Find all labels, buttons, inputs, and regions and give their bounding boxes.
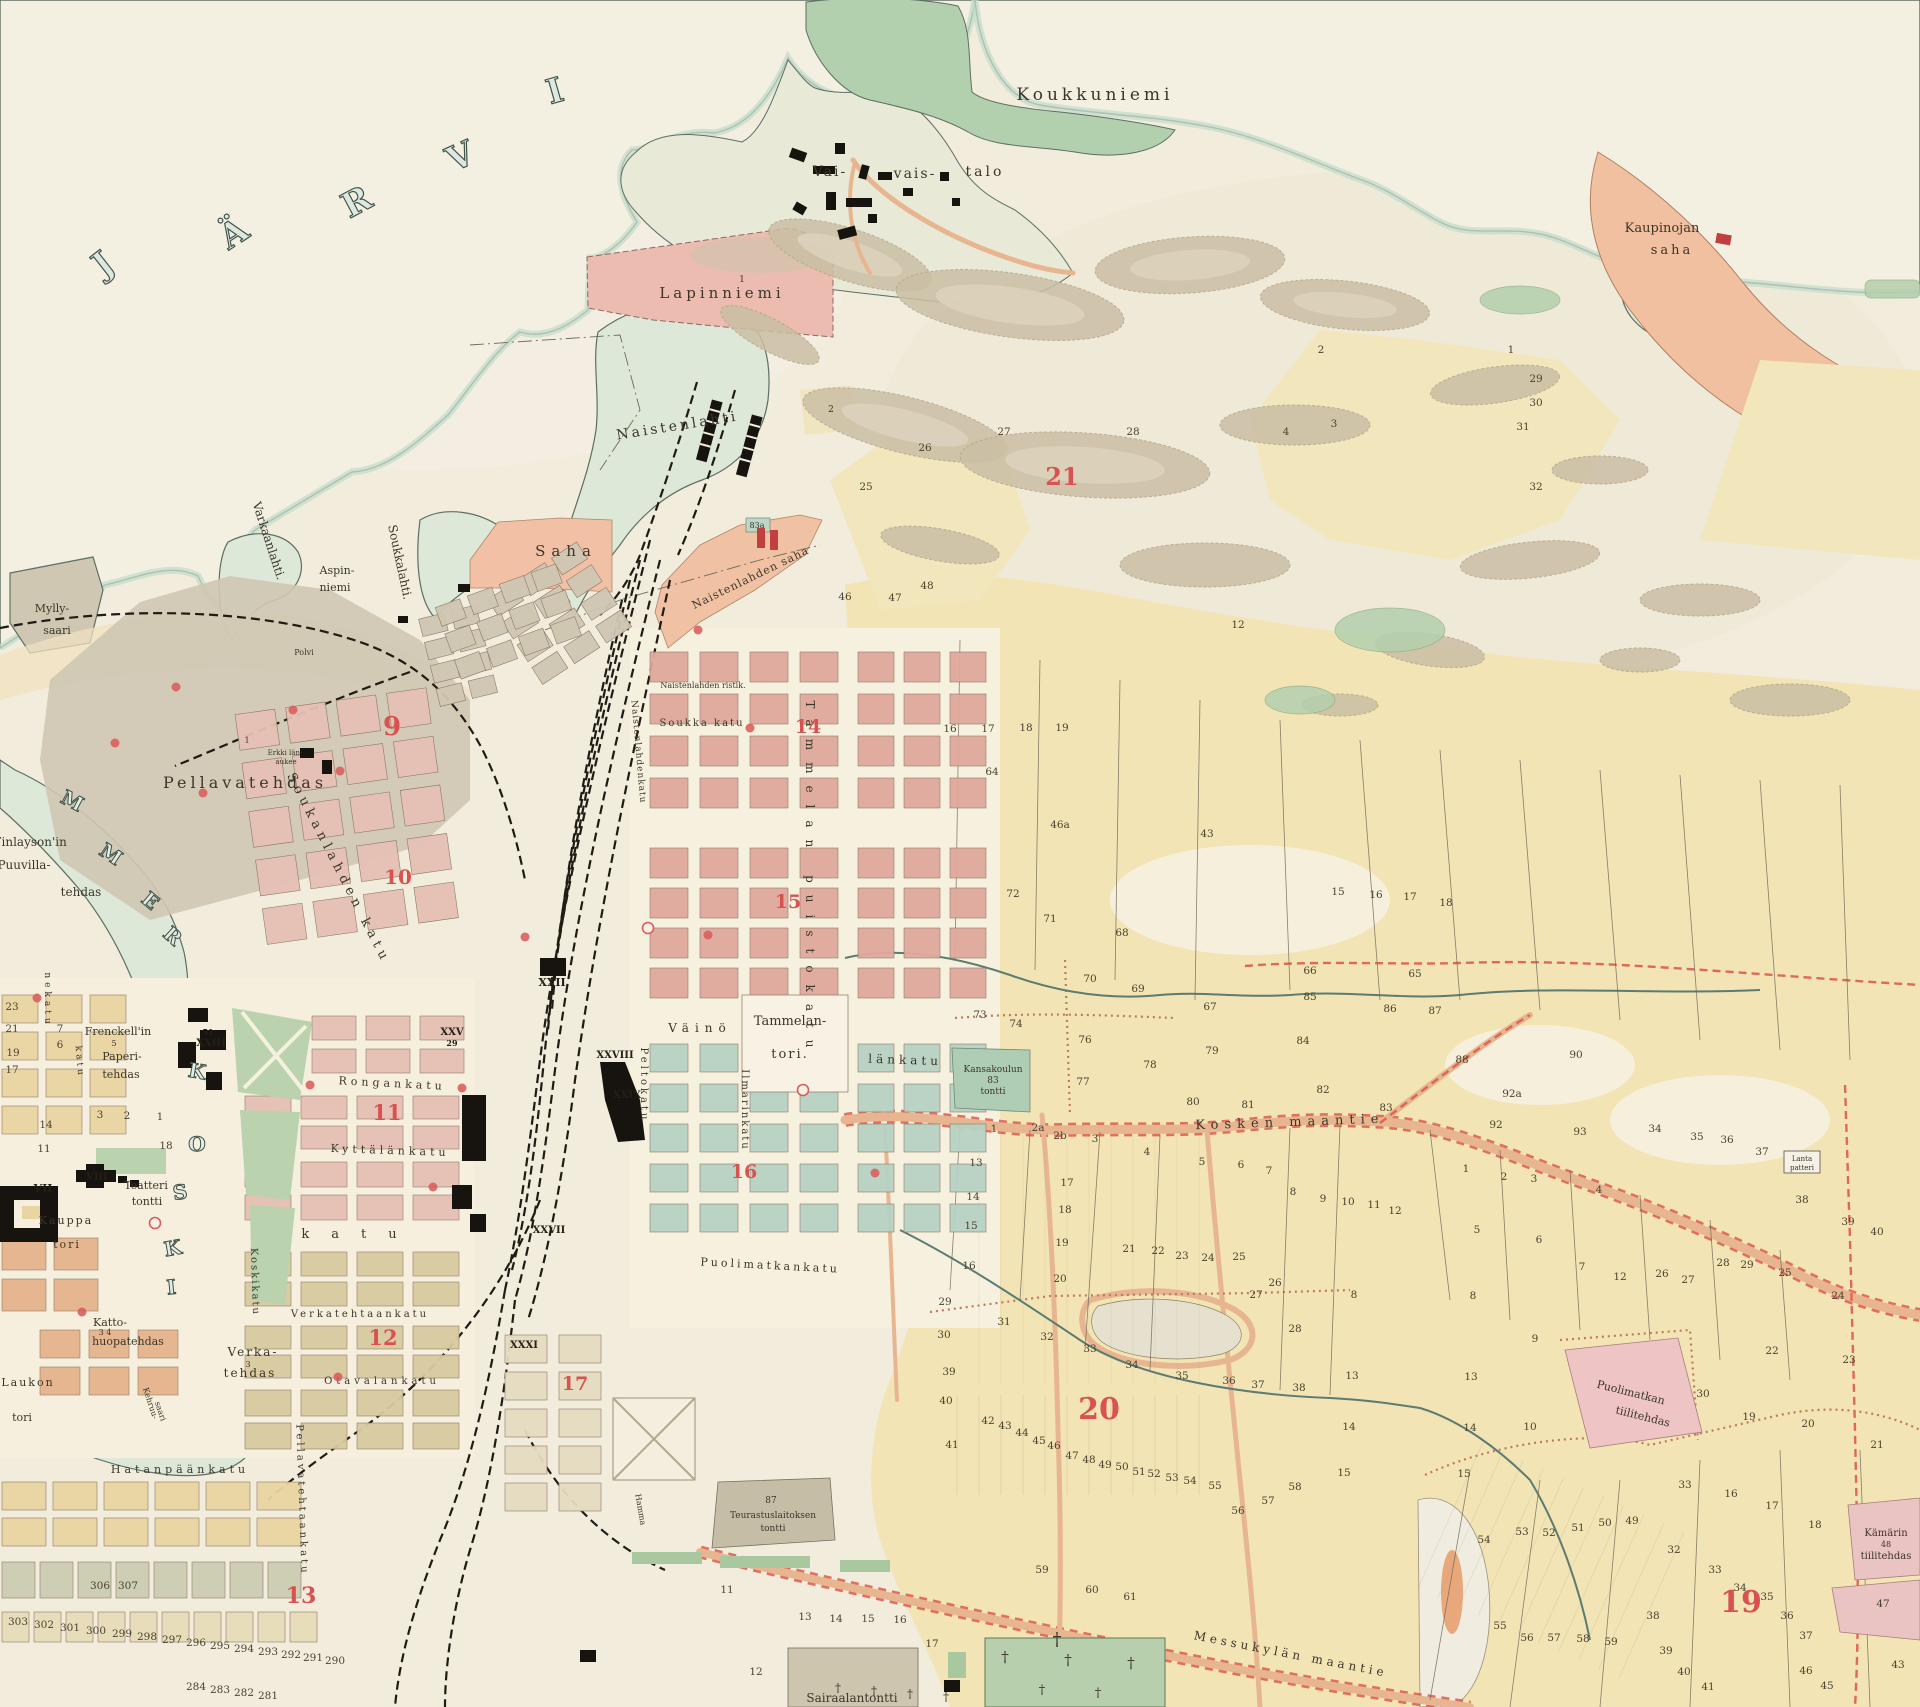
place-label: tehdas	[102, 1068, 140, 1081]
parcel-number: 283	[210, 1684, 230, 1696]
parcel-number: 17	[1765, 1500, 1778, 1512]
parcel-number: 7	[1579, 1261, 1586, 1273]
hollow-dot	[798, 1085, 809, 1096]
parcel-number: 23	[1175, 1250, 1188, 1262]
place-label: Ilmarinkatu	[739, 1069, 750, 1151]
parcel-number: 40	[1677, 1666, 1690, 1678]
city-block	[858, 778, 894, 808]
parcel-number: 61	[1123, 1591, 1136, 1603]
parcel-number: 17	[1403, 891, 1416, 903]
city-block	[904, 1164, 940, 1192]
parcel-number: 43	[1891, 1659, 1904, 1671]
roman-numeral: 51	[202, 1027, 213, 1037]
city-block	[2, 1482, 46, 1510]
city-block	[2, 1562, 35, 1598]
city-block	[230, 1562, 263, 1598]
parcel-number: 29	[1740, 1259, 1753, 1271]
parcel-number: 59	[1035, 1564, 1048, 1576]
city-block	[89, 1367, 129, 1395]
district-number: 12	[368, 1325, 397, 1350]
district-number: 10	[384, 865, 412, 889]
parcel-number: 26	[1268, 1277, 1282, 1289]
parcel-number: 57	[1547, 1632, 1560, 1644]
place-label: Naistenlahden ristik.	[660, 681, 745, 690]
place-label: tori	[12, 1411, 32, 1424]
parcel-number: 1	[1463, 1163, 1470, 1175]
roman-numeral: XXV	[440, 1027, 464, 1038]
parcel-number: 21	[5, 1023, 18, 1035]
city-block	[2, 1238, 46, 1270]
parcel-number: 300	[86, 1625, 106, 1637]
place-label: Kauppa	[39, 1214, 94, 1227]
city-block	[54, 1279, 98, 1311]
city-block	[950, 1124, 986, 1152]
city-block	[700, 1044, 738, 1072]
roman-numeral: XXIX	[613, 1090, 641, 1101]
parcel-number: 20	[1053, 1273, 1066, 1285]
cross-symbol: †	[1001, 1648, 1009, 1666]
parcel-number: 10	[1523, 1421, 1536, 1433]
parcel-number: 21	[1122, 1243, 1135, 1255]
parcel-number: 303	[8, 1616, 28, 1628]
parcel-number: 18	[1439, 897, 1452, 909]
city-block	[256, 855, 301, 896]
parcel-number: 307	[118, 1580, 138, 1592]
parcel-number: 47	[1876, 1598, 1889, 1610]
city-block	[366, 1049, 410, 1073]
city-block	[950, 888, 986, 918]
city-block	[650, 778, 688, 808]
city-block	[357, 1162, 403, 1187]
parcel-number: 77	[1076, 1076, 1089, 1088]
place-label: Kämärin	[1864, 1528, 1908, 1539]
parcel-number: 55	[1493, 1620, 1506, 1632]
city-block	[40, 1330, 80, 1358]
city-block	[904, 736, 940, 766]
city-block	[257, 1518, 301, 1546]
place-label: tori	[53, 1238, 81, 1251]
cross-symbol: †	[907, 1687, 913, 1701]
place-label: Verkatehtaankatu	[290, 1309, 429, 1320]
city-block	[357, 1195, 403, 1220]
city-block	[257, 1482, 301, 1510]
parcel-number: 24	[1831, 1290, 1845, 1302]
city-block	[301, 1326, 347, 1349]
city-block	[104, 1482, 148, 1510]
place-label: 2	[828, 405, 834, 415]
parcel-number: 46a	[1050, 819, 1070, 831]
parcel-number: 64	[985, 766, 999, 778]
parcel-number: 21	[1870, 1439, 1883, 1451]
roman-numeral: XXVII	[533, 1225, 566, 1236]
river-letter: O	[188, 1132, 205, 1156]
parcel-number: 15	[1457, 1468, 1470, 1480]
parcel-number: 45	[1820, 1680, 1833, 1692]
parcel-number: 39	[942, 1366, 955, 1378]
parcel-number: 31	[997, 1316, 1010, 1328]
parcel-number: 18	[1808, 1519, 1821, 1531]
parcel-number: 26	[918, 442, 932, 454]
parcel-number: 14	[1342, 1421, 1356, 1433]
city-block	[357, 1355, 403, 1378]
red-dot	[694, 626, 703, 635]
city-block	[858, 652, 894, 682]
parcel-number: 79	[1205, 1045, 1218, 1057]
city-block	[53, 1518, 97, 1546]
city-block	[559, 1335, 601, 1363]
parcel-number: 70	[1083, 973, 1096, 985]
parcel-number: 18	[159, 1140, 172, 1152]
city-block	[343, 743, 388, 784]
parcel-number: 53	[1165, 1472, 1178, 1484]
parcel-number: 67	[1203, 1001, 1216, 1013]
parcel-number: 23	[5, 1001, 18, 1013]
city-block	[904, 778, 940, 808]
parcel-number: 3	[1092, 1133, 1099, 1145]
parcel-number: 37	[1251, 1379, 1264, 1391]
parcel-number: 40	[939, 1395, 952, 1407]
parcel-number: 9	[1532, 1333, 1539, 1345]
parcel-number: 72	[1006, 888, 1019, 900]
parcel-number: 86	[1383, 1003, 1397, 1015]
city-block	[90, 1106, 126, 1134]
city-block	[262, 903, 307, 944]
city-block	[950, 778, 986, 808]
parcel-number: 35	[1760, 1591, 1773, 1603]
city-block	[357, 1423, 403, 1449]
parcel-number: 31	[1516, 421, 1529, 433]
district-number: 17	[562, 1373, 588, 1395]
parcel-number: 69	[1131, 983, 1144, 995]
city-block	[650, 1084, 688, 1112]
city-block	[2, 1518, 46, 1546]
city-block	[858, 1164, 894, 1192]
place-label: huopatehdas	[92, 1335, 164, 1348]
city-block	[700, 778, 738, 808]
district-number: 20	[1078, 1392, 1120, 1427]
parcel-number: 5	[1199, 1156, 1206, 1168]
place-label: Vai-	[812, 164, 847, 180]
city-block	[393, 736, 438, 777]
place-label: Hatanpäänkatu	[111, 1463, 249, 1476]
parcel-number: 19	[1055, 722, 1068, 734]
light-patch	[1445, 1025, 1635, 1105]
city-block	[366, 1016, 410, 1040]
parcel-number: 71	[1043, 913, 1056, 925]
parcel-number: 60	[1085, 1584, 1098, 1596]
city-block	[559, 1483, 601, 1511]
city-block	[858, 1204, 894, 1232]
place-label: 1	[739, 275, 745, 285]
place-label: patteri	[1790, 1164, 1815, 1172]
city-block	[858, 928, 894, 958]
place-label: Lapinniemi	[659, 284, 784, 302]
parcel-number: 53	[1515, 1526, 1528, 1538]
parcel-number: 3	[97, 1109, 104, 1121]
parcel-number: 87	[1428, 1005, 1441, 1017]
parcel-number: 8	[1290, 1186, 1297, 1198]
x-park-square	[613, 1398, 695, 1480]
parcel-number: 19	[6, 1047, 19, 1059]
parcel-number: 13	[1345, 1370, 1358, 1382]
parcel-number: 1	[1508, 344, 1515, 356]
parcel-number: 65	[1408, 968, 1421, 980]
city-block	[858, 1084, 894, 1112]
city-block	[904, 652, 940, 682]
city-block	[800, 1124, 838, 1152]
parcel-number: 1	[991, 1123, 998, 1135]
city-block	[700, 968, 738, 998]
city-block	[357, 1282, 403, 1306]
red-dot	[111, 739, 120, 748]
place-label: niemi	[319, 581, 351, 594]
place-label: Väinö	[667, 1021, 732, 1035]
city-block	[904, 888, 940, 918]
place-label: 83	[987, 1076, 999, 1086]
parcel-number: 18	[1019, 722, 1032, 734]
parcel-number: 83	[1379, 1102, 1392, 1114]
city-block	[2, 1279, 46, 1311]
parcel-number: 24	[1201, 1252, 1215, 1264]
red-dot	[429, 1183, 438, 1192]
parcel-number: 35	[1175, 1370, 1188, 1382]
parcel-number: 92a	[1502, 1088, 1522, 1100]
kamari-brickworks	[1848, 1498, 1920, 1580]
parcel-number: 32	[1667, 1544, 1680, 1556]
city-block	[192, 1562, 225, 1598]
parcel-number: 57	[1261, 1495, 1274, 1507]
city-block	[750, 694, 788, 724]
city-block	[336, 695, 381, 736]
place-label: Aspin-	[319, 564, 355, 577]
city-block	[407, 833, 452, 874]
parcel-number: 17	[981, 723, 994, 735]
parcel-number: 12	[1613, 1271, 1626, 1283]
parcel-number: 34	[1125, 1359, 1139, 1371]
city-block	[650, 928, 688, 958]
city-block	[413, 1096, 459, 1119]
parcel-number: 7	[57, 1023, 64, 1035]
place-label: saha	[1651, 243, 1694, 258]
red-dot	[521, 933, 530, 942]
place-label: tontti	[132, 1195, 163, 1208]
city-block	[750, 778, 788, 808]
cross-symbol: †	[1039, 1683, 1046, 1698]
city-block	[700, 652, 738, 682]
parcel-number: 52	[1147, 1468, 1160, 1480]
parcel-number: 49	[1625, 1515, 1638, 1527]
parcel-number: 306	[90, 1580, 110, 1592]
parcel-number: 2b	[1053, 1130, 1067, 1142]
parcel-number: 38	[1646, 1610, 1659, 1622]
parcel-number: 295	[210, 1640, 230, 1652]
parcel-number: 66	[1303, 965, 1317, 977]
city-block	[650, 652, 688, 682]
parcel-number: 15	[1331, 886, 1344, 898]
parcel-number: 33	[1678, 1479, 1691, 1491]
place-label: tehdas	[224, 1366, 277, 1380]
city-block	[226, 1612, 253, 1642]
roman-numeral: VIII	[85, 1172, 108, 1183]
parcel-number: 32	[1529, 481, 1542, 493]
parcel-number: 74	[1009, 1018, 1023, 1030]
city-block	[301, 1096, 347, 1119]
place-label: Erkki län-	[268, 749, 303, 757]
city-block	[700, 1204, 738, 1232]
parcel-number: 82	[1316, 1084, 1329, 1096]
cross-symbol: †	[871, 1684, 877, 1698]
parcel-number: 4	[1144, 1146, 1151, 1158]
city-block	[413, 1326, 459, 1349]
city-block	[245, 1423, 291, 1449]
parcel-number: 44	[1015, 1427, 1029, 1439]
red-dot	[33, 994, 42, 1003]
parcel-number: 15	[964, 1220, 977, 1232]
parcel-number: 41	[945, 1439, 958, 1451]
place-label: talo	[966, 164, 1005, 180]
parcel-number: 30	[1696, 1388, 1709, 1400]
city-block	[258, 1612, 285, 1642]
place-label: Peltokatu	[638, 1048, 649, 1123]
parcel-number: 73	[973, 1009, 986, 1021]
city-block	[800, 652, 838, 682]
place-label: länkatu	[868, 1052, 942, 1069]
parcel-number: 16	[943, 723, 957, 735]
parcel-number: 17	[925, 1638, 938, 1650]
parcel-number: 293	[258, 1646, 278, 1658]
parcel-number: 38	[1795, 1194, 1808, 1206]
city-block	[800, 1164, 838, 1192]
parcel-number: 30	[1529, 397, 1542, 409]
parcel-number: 290	[325, 1655, 345, 1667]
red-dot	[746, 724, 755, 733]
district-number: 9	[383, 712, 401, 742]
parcel-number: 58	[1576, 1633, 1589, 1645]
parcel-number: 296	[186, 1637, 206, 1649]
parcel-number: 46	[1799, 1665, 1813, 1677]
parcel-number: 88	[1455, 1054, 1468, 1066]
parcel-number: 20	[1801, 1418, 1814, 1430]
city-block	[505, 1446, 547, 1474]
place-label: Kansakoulun	[963, 1065, 1022, 1075]
parcel-number: 14	[966, 1191, 980, 1203]
red-dot	[289, 706, 298, 715]
parcel-number: 291	[303, 1652, 323, 1664]
parcel-number: 55	[1208, 1480, 1221, 1492]
parcel-number: 301	[60, 1622, 80, 1634]
city-block	[40, 1562, 73, 1598]
place-label: tehdas	[61, 885, 102, 899]
parcel-number: 2a	[1032, 1122, 1045, 1134]
parcel-number: 2	[1318, 344, 1325, 356]
parcel-number: 17	[1060, 1177, 1073, 1189]
district-number: 11	[372, 1100, 401, 1125]
city-block	[155, 1482, 199, 1510]
city-block	[413, 1162, 459, 1187]
parcel-number: 37	[1755, 1146, 1768, 1158]
parcel-number: 299	[112, 1628, 132, 1640]
parcel-number: 28	[1288, 1323, 1301, 1335]
place-label: tontti	[761, 1524, 786, 1534]
place-label: 83a	[750, 521, 765, 530]
red-dot	[172, 683, 181, 692]
city-block	[750, 1124, 788, 1152]
hollow-dot	[150, 1218, 161, 1229]
cross-symbol: †	[1053, 1629, 1062, 1650]
city-block	[505, 1409, 547, 1437]
place-label: Saha	[535, 542, 597, 560]
parcel-number: 39	[1659, 1645, 1672, 1657]
parcel-number: 281	[258, 1690, 278, 1702]
city-block	[904, 1204, 940, 1232]
parcel-number: 8	[1351, 1289, 1358, 1301]
parcel-number: 292	[281, 1649, 301, 1661]
parcel-number: 78	[1143, 1059, 1156, 1071]
place-label: Verka-	[227, 1345, 279, 1359]
city-block	[650, 848, 688, 878]
city-block	[950, 848, 986, 878]
place-label: 87	[765, 1496, 777, 1506]
place-label: vais-	[893, 166, 937, 182]
cross-symbol: †	[943, 1690, 949, 1704]
parcel-number: 35	[1690, 1131, 1703, 1143]
parcel-number: 37	[1799, 1630, 1812, 1642]
city-block	[858, 968, 894, 998]
roman-numeral: XXXI	[510, 1340, 538, 1351]
city-block	[650, 888, 688, 918]
city-block	[350, 792, 395, 833]
city-block	[206, 1518, 250, 1546]
parcel-number: 297	[162, 1634, 182, 1646]
parcel-number: 50	[1115, 1461, 1128, 1473]
place-label: Teurastuslaitoksen	[730, 1511, 816, 1521]
parcel-number: 8	[1470, 1290, 1477, 1302]
city-block	[301, 1423, 347, 1449]
parcel-number: 14	[829, 1613, 843, 1625]
city-block	[413, 1282, 459, 1306]
place-label: tontti	[981, 1087, 1006, 1097]
parcel-number: 50	[1598, 1517, 1611, 1529]
parcel-number: 11	[37, 1143, 50, 1155]
tammelantori-square	[742, 995, 848, 1092]
cross-symbol: †	[1127, 1654, 1135, 1672]
parcel-number: 294	[234, 1643, 254, 1655]
parcel-number: 16	[1724, 1488, 1738, 1500]
parcel-number: 92	[1489, 1119, 1502, 1131]
city-block	[420, 1049, 464, 1073]
city-block	[2, 1106, 38, 1134]
parcel-number: 93	[1573, 1126, 1586, 1138]
city-block	[154, 1562, 187, 1598]
city-block	[904, 694, 940, 724]
parcel-number: 29	[1529, 373, 1542, 385]
parcel-number: 12	[1388, 1205, 1401, 1217]
parcel-number: 76	[1078, 1034, 1092, 1046]
city-block	[800, 1204, 838, 1232]
city-block	[357, 1390, 403, 1416]
parcel-number: 56	[1231, 1505, 1245, 1517]
city-block	[301, 1252, 347, 1276]
parcel-number: 51	[1132, 1466, 1145, 1478]
city-block	[53, 1482, 97, 1510]
city-block	[750, 848, 788, 878]
city-block	[750, 968, 788, 998]
city-block	[301, 1282, 347, 1306]
parcel-number: 32	[1040, 1331, 1053, 1343]
place-label: Lanta	[1792, 1155, 1812, 1163]
place-label: Laukon	[1, 1376, 54, 1389]
parcel-number: 42	[981, 1415, 994, 1427]
